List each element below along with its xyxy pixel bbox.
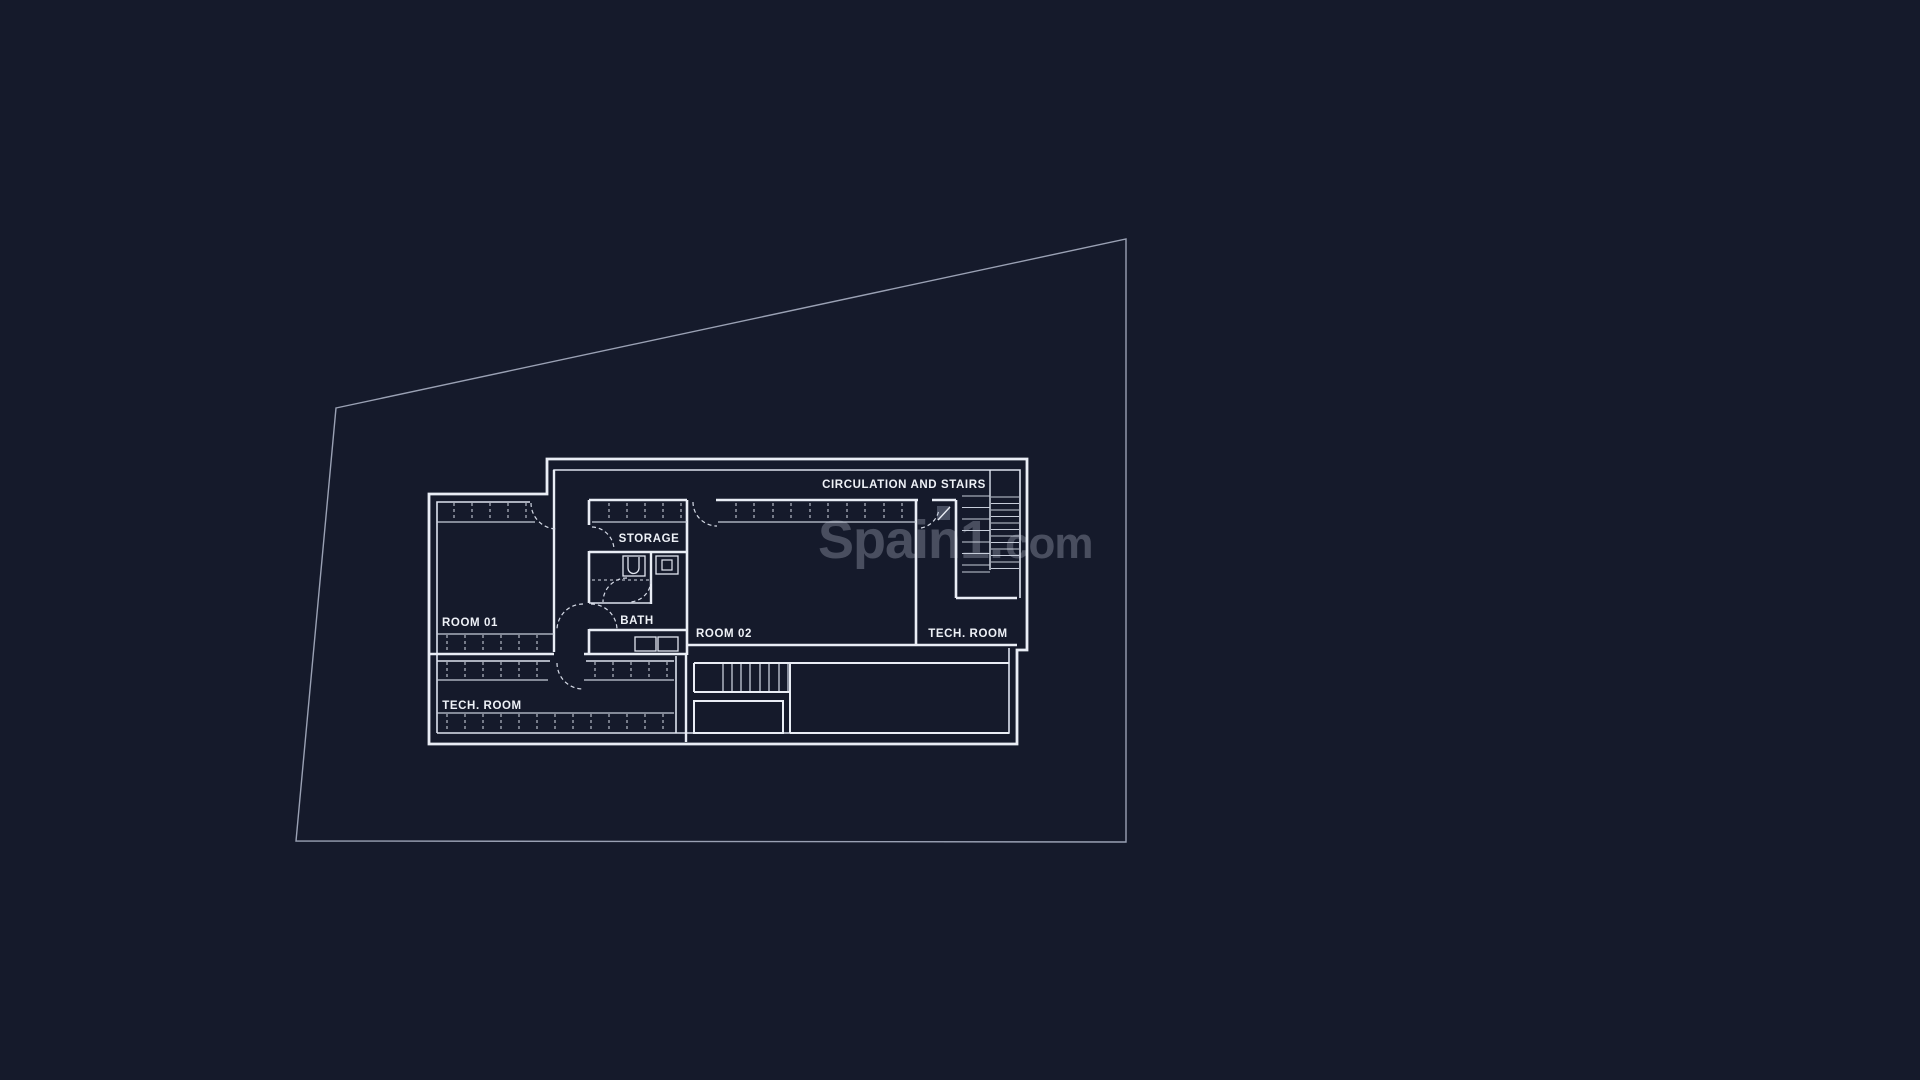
door-arc-storage — [592, 527, 614, 550]
terrace-small-rect — [694, 701, 783, 733]
label-room-01: ROOM 01 — [442, 617, 498, 629]
terrace-stair-treads — [723, 664, 788, 691]
band-storage-dividers — [609, 503, 681, 521]
sink-icon — [656, 556, 678, 574]
washer-icon-1 — [635, 637, 656, 651]
label-room-02: ROOM 02 — [696, 628, 752, 640]
terrace-main-rect — [790, 663, 1009, 733]
door-arc-shower-2 — [629, 580, 651, 602]
toilet-bowl-icon — [628, 557, 639, 574]
band-techleft-bottom-dividers — [447, 714, 663, 731]
door-arc-corridor — [557, 604, 583, 630]
band-room01-top-dividers — [454, 503, 526, 521]
door-arc-room02 — [693, 502, 717, 526]
label-bath: BATH — [620, 615, 654, 627]
band-room01-bottom-dividers — [447, 635, 537, 652]
sink-basin-icon — [662, 560, 672, 570]
terrace — [694, 663, 1009, 733]
floor-plan-canvas: Spain1.com — [0, 0, 1920, 1080]
door-arc-techroom — [557, 663, 583, 689]
washer-icon-2 — [658, 637, 678, 651]
door-arc-bath — [591, 604, 617, 630]
label-circulation-and-stairs: CIRCULATION AND STAIRS — [822, 479, 986, 491]
door-arc-shower-1 — [603, 578, 627, 602]
watermark-secondary: com — [1005, 519, 1092, 568]
label-storage: STORAGE — [619, 533, 680, 545]
label-tech-room-right: TECH. ROOM — [928, 628, 1007, 640]
terrace-stair-lane — [694, 663, 790, 692]
label-tech-room-left: TECH. ROOM — [442, 700, 521, 712]
floor-plan-page: Spain1.com — [0, 0, 1920, 1080]
